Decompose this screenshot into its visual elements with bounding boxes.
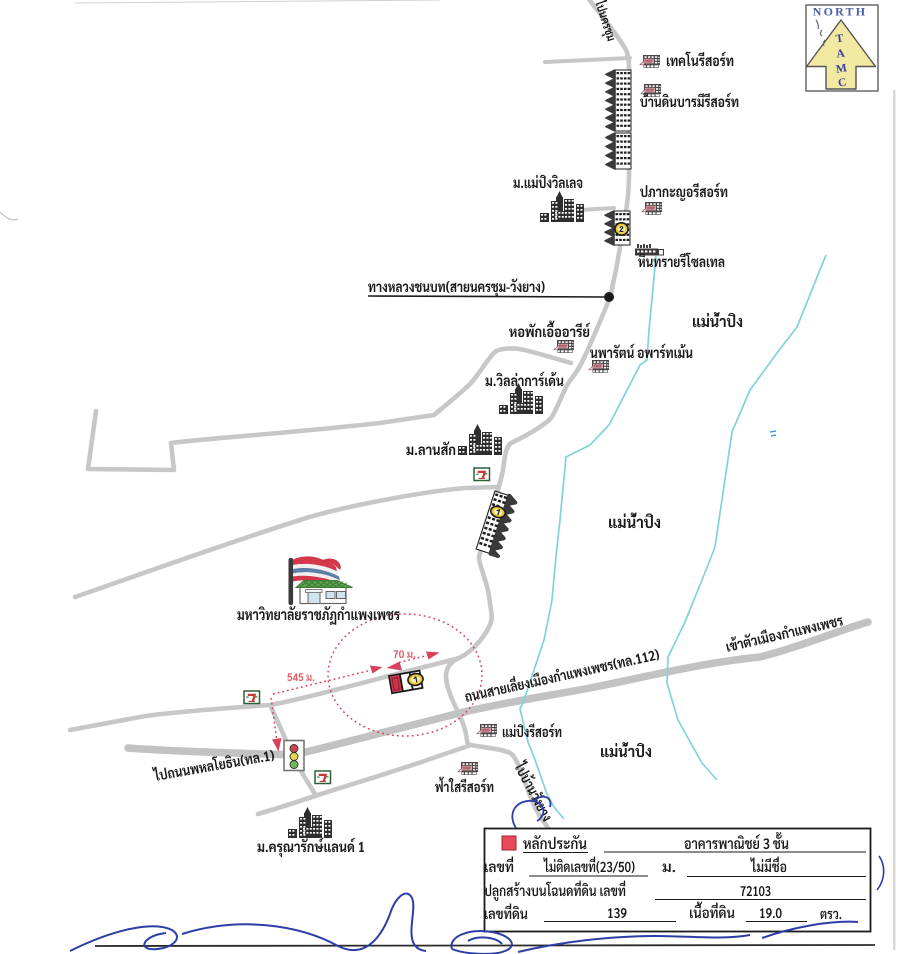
svg-text:M: M (835, 62, 848, 76)
svg-text:NORTH: NORTH (813, 5, 868, 19)
